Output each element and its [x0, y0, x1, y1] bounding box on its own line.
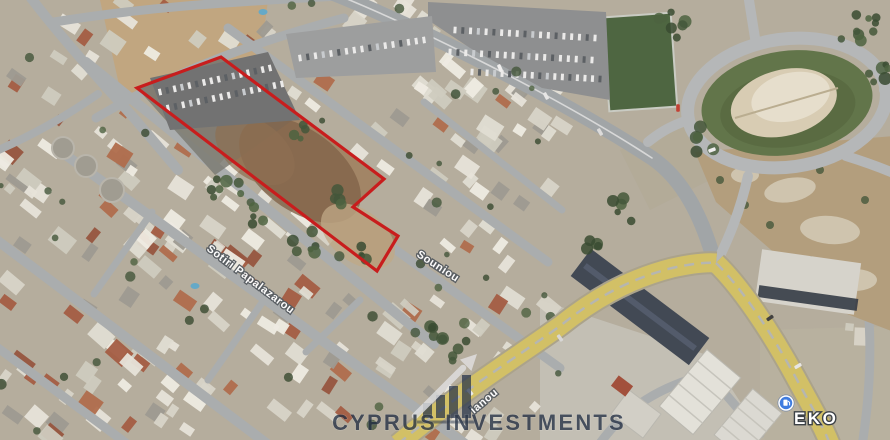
- fuel-pump-icon: [783, 400, 787, 406]
- satellite-map[interactable]: Sotiri Papalazarou Souniou ianou EKO CYP…: [0, 0, 890, 440]
- eko-fuel-station-pin[interactable]: [778, 395, 795, 412]
- warm-tone-overlay: [0, 0, 890, 440]
- eko-poi-label[interactable]: EKO: [794, 409, 838, 428]
- map-viewport[interactable]: Sotiri Papalazarou Souniou ianou EKO CYP…: [0, 0, 890, 440]
- watermark-brand-text: CYPRUS INVESTMENTS: [332, 410, 626, 435]
